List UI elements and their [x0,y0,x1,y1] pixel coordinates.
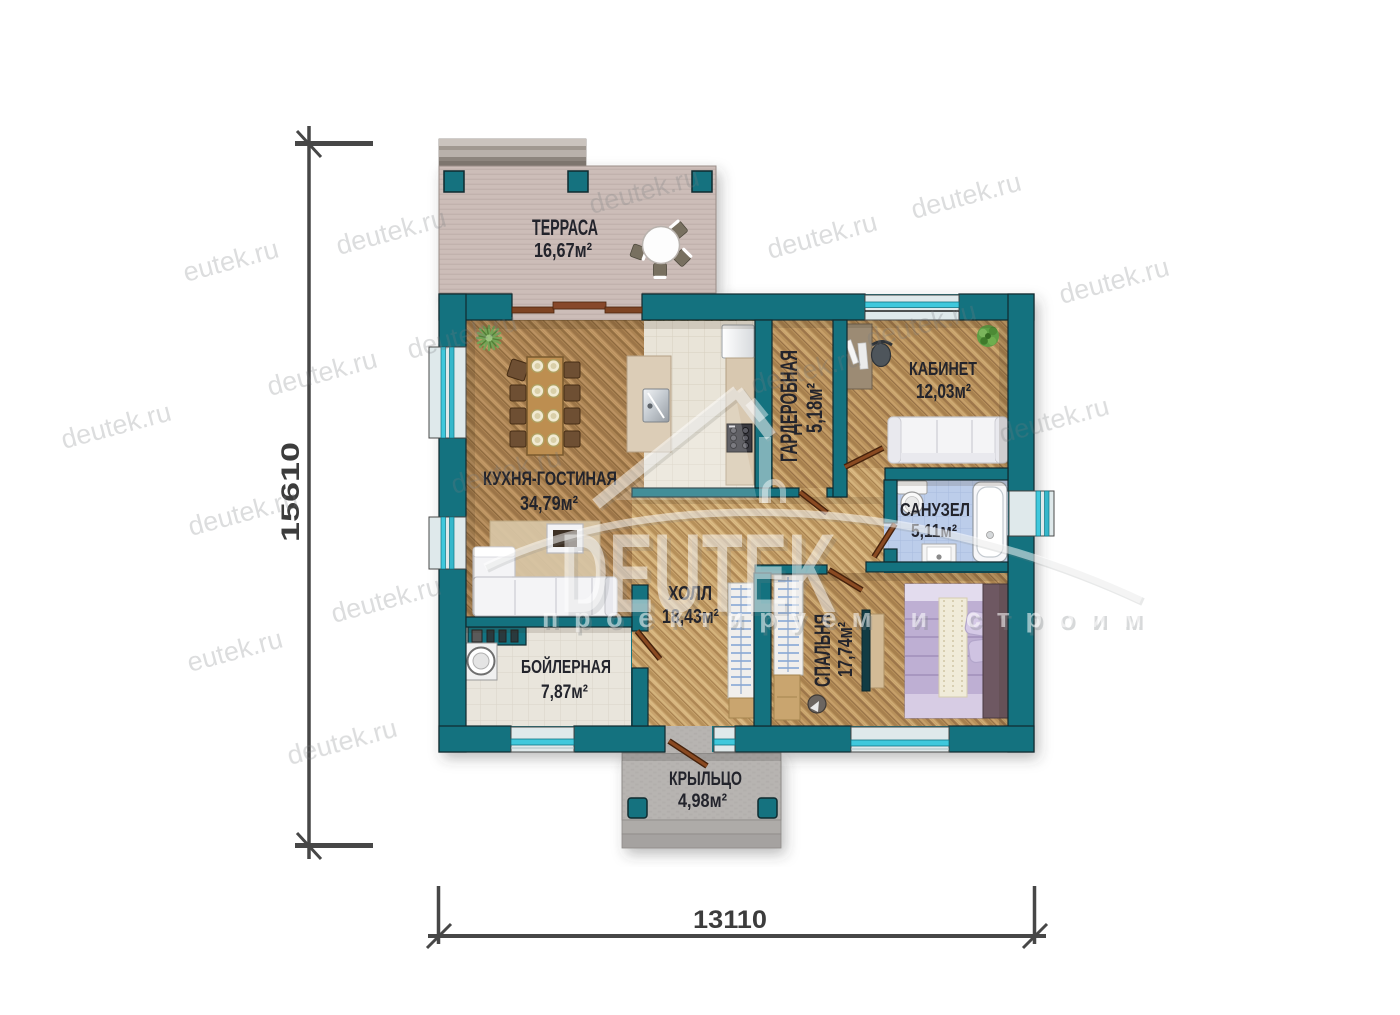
svg-text:БОЙЛЕРНАЯ: БОЙЛЕРНАЯ [521,656,611,677]
svg-text:ТЕРРАСА: ТЕРРАСА [532,215,598,240]
svg-text:4,98м²: 4,98м² [678,791,727,812]
svg-text:КАБИНЕТ: КАБИНЕТ [909,359,977,379]
svg-text:5,18м²: 5,18м² [802,383,827,433]
svg-text:САНУЗЕЛ: САНУЗЕЛ [900,500,970,520]
svg-text:12,03м²: 12,03м² [916,381,971,403]
svg-text:КРЫЛЬЦО: КРЫЛЬЦО [669,769,742,790]
svg-text:16,67м²: 16,67м² [534,240,592,262]
svg-text:13110: 13110 [693,906,767,934]
svg-text:7,87м²: 7,87м² [541,682,588,703]
